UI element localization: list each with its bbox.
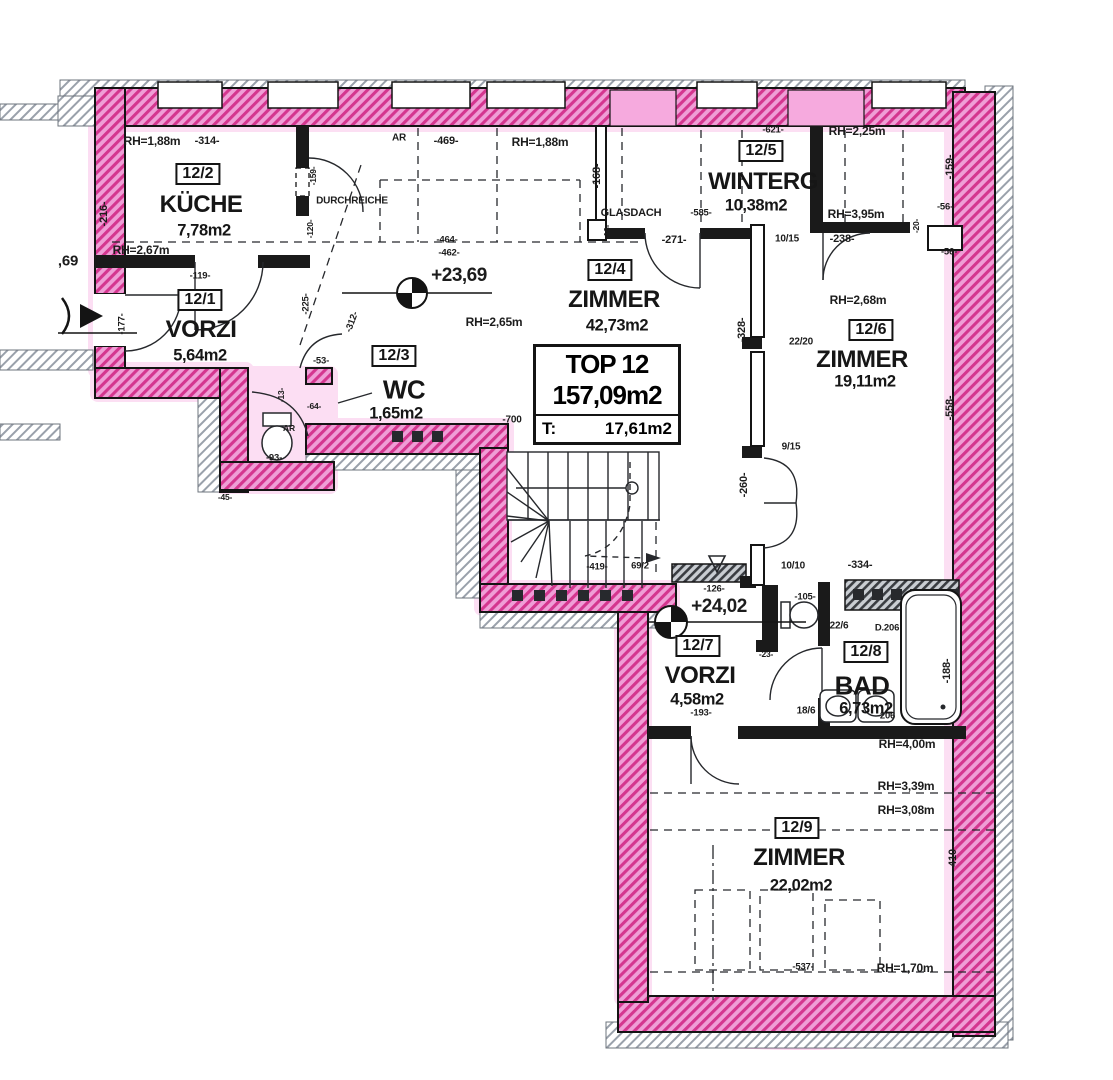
dimension-label: 9/15 (782, 442, 801, 453)
dimension-label: -334- (848, 559, 873, 571)
dimension-label: -105- (794, 592, 815, 603)
dimension-label: RH=1,70m (877, 961, 934, 975)
dimension-label: -585- (690, 208, 711, 219)
pass-through-label: DURCHREICHE (316, 196, 388, 207)
room-name-12-7: VORZI (665, 662, 736, 690)
dimension-label: RH=2,68m (830, 293, 887, 307)
dimension-label: -260- (738, 473, 750, 498)
terrace-label: T: (542, 419, 556, 439)
room-name-12-6: ZIMMER (816, 346, 908, 374)
dimension-label: -700 (502, 415, 521, 426)
dimension-label: -13- (276, 388, 286, 402)
room-area-12-9: 22,02m2 (770, 877, 832, 896)
room-area-12-2: 7,78m2 (177, 222, 231, 241)
dimension-label: RH=2,67m (113, 243, 170, 257)
room-name-12-5: WINTERG (708, 168, 818, 196)
dimension-label: -93- (266, 453, 282, 464)
bathtub (901, 590, 961, 724)
glass-roof-label: GLASDACH (601, 207, 662, 219)
dimension-label: -419- (586, 562, 607, 573)
dimension-label: -537- (792, 962, 813, 973)
floor-plan: 12/1 VORZI 5,64m2 12/2 KÜCHE 7,78m2 12/3… (0, 0, 1113, 1080)
room-name-12-1: VORZI (166, 316, 237, 344)
dimension-label: -177- (117, 313, 128, 334)
dimension-label: -621- (762, 125, 783, 136)
dimension-label: -328- (736, 318, 748, 343)
dimension-label: 18/6 (797, 706, 816, 717)
level-value: +23,69 (431, 265, 487, 287)
dimension-label: -410- (947, 846, 959, 871)
room-area-12-3: 1,65m2 (369, 405, 423, 424)
dimension-label: -126- (703, 584, 724, 595)
dimension-label: -225- (301, 293, 312, 314)
dimension-label: -216- (98, 202, 110, 227)
unit-number: TOP 12 (536, 347, 678, 380)
dimension-label: -469- (434, 135, 459, 147)
dimension-label: RH=3,95m (828, 207, 885, 221)
dimension-label: RH=2,65m (466, 315, 523, 329)
dimension-label: -56- (941, 247, 957, 258)
dimension-label: RH=3,08m (878, 803, 935, 817)
dimension-label: RH=2,25m (829, 124, 886, 138)
room-tag-12-3: 12/3 (371, 345, 416, 367)
wc-leader-line (338, 393, 372, 403)
unit-total-area: 157,09m2 (536, 380, 678, 416)
terrace-area: 17,61m2 (605, 419, 672, 439)
dimension-label: 22/6 (830, 621, 849, 632)
dimension-label: -53- (313, 356, 329, 367)
dimension-label: RH=1,88m (512, 135, 569, 149)
dimension-label: -64- (307, 401, 321, 411)
dimension-label: 69/2 (631, 561, 649, 572)
room-name-12-8: BAD (835, 671, 890, 702)
dimension-label: AR (283, 423, 295, 433)
room-area-12-6: 19,11m2 (834, 373, 895, 392)
dimension-label: -45- (218, 492, 232, 502)
partial-level-label: ,69 (58, 253, 78, 270)
dimension-label: -314- (195, 135, 220, 147)
room-area-12-4: 42,73m2 (586, 317, 648, 336)
dimension-label: AR (392, 133, 406, 144)
unit-summary-box: TOP 12 157,09m2 T: 17,61m2 (533, 344, 681, 445)
room-area-12-8: 6,73m2 (839, 700, 893, 719)
room-area-12-5: 10,38m2 (725, 197, 787, 216)
dimension-label: 10/15 (775, 234, 799, 245)
dimension-label: 22/20 (789, 337, 813, 348)
room-tag-12-1: 12/1 (177, 289, 222, 311)
dimension-label: 10/10 (781, 561, 805, 572)
room-name-12-4: ZIMMER (568, 286, 660, 314)
dimension-label: -168- (591, 164, 603, 189)
dimension-label: -271- (662, 234, 687, 246)
level-value: +24,02 (691, 596, 747, 618)
dimension-label: -238- (830, 233, 855, 245)
room-tag-12-6: 12/6 (848, 319, 893, 341)
dimension-label: -462- (438, 248, 459, 259)
dimension-label: -119- (190, 271, 211, 282)
room-tag-12-7: 12/7 (675, 635, 720, 657)
dimension-label: -464- (436, 235, 457, 246)
room-tag-12-5: 12/5 (738, 140, 783, 162)
dimension-label: -159- (308, 167, 318, 186)
room-tag-12-8: 12/8 (843, 641, 888, 663)
dimension-label: -159- (944, 155, 956, 180)
dimension-label: -558- (944, 396, 956, 421)
room-name-12-9: ZIMMER (753, 844, 845, 872)
room-area-12-7: 4,58m2 (670, 691, 724, 710)
dimension-label: -23- (759, 649, 773, 659)
room-name-12-2: KÜCHE (160, 191, 243, 219)
room-name-12-3: WC (383, 375, 425, 406)
dashed-line (112, 128, 1000, 972)
room-tag-12-4: 12/4 (587, 259, 632, 281)
dimension-label: -56- (937, 202, 953, 213)
dimension-label: RH=1,88m (124, 134, 181, 148)
dimension-label: RH=3,39m (878, 779, 935, 793)
dimension-label: -16- (602, 225, 612, 239)
room-area-12-1: 5,64m2 (173, 347, 227, 366)
dimension-label: -188- (941, 659, 953, 684)
dimension-label: RH=4,00m (879, 737, 936, 751)
dimension-label: D.206 (875, 623, 899, 634)
room-tag-12-2: 12/2 (175, 163, 220, 185)
dimension-label: -20- (911, 219, 921, 233)
dimension-label: -120- (305, 220, 315, 239)
room-tag-12-9: 12/9 (774, 817, 819, 839)
